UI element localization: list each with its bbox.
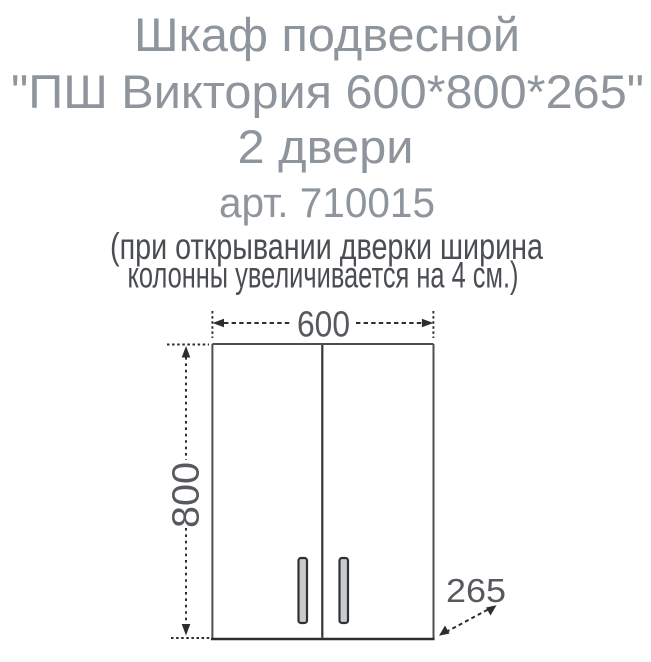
svg-text:арт. 710015: арт. 710015: [219, 179, 435, 226]
svg-text:800: 800: [166, 462, 208, 528]
svg-text:"ПШ Виктория 600*800*265": "ПШ Виктория 600*800*265": [11, 66, 644, 119]
svg-text:Шкаф подвесной: Шкаф подвесной: [134, 9, 520, 62]
svg-text:колонны увеличивается на 4 см.: колонны увеличивается на 4 см.): [128, 255, 519, 296]
svg-text:600: 600: [297, 304, 350, 345]
svg-text:2 двери: 2 двери: [238, 121, 414, 174]
svg-text:265: 265: [446, 572, 506, 609]
